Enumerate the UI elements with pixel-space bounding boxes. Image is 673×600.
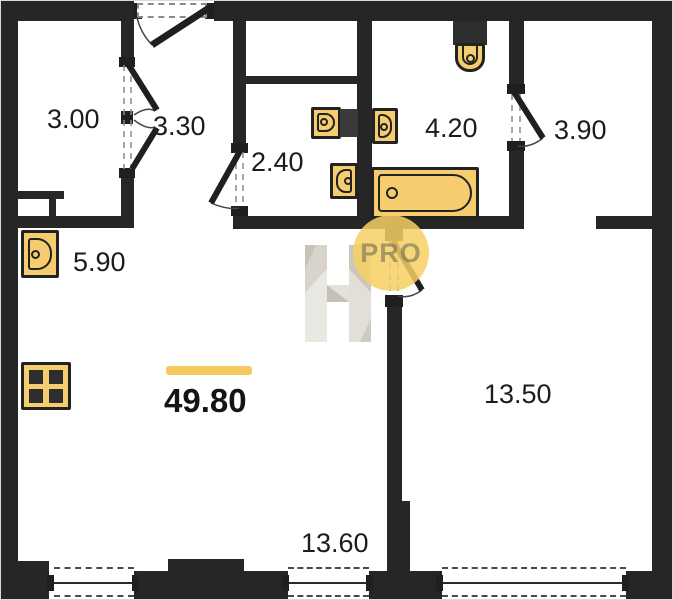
duct-shaft-wall <box>49 199 56 216</box>
toilet-icon <box>455 43 485 72</box>
window-icon <box>442 595 626 597</box>
wall <box>626 571 673 600</box>
wall <box>1 1 134 21</box>
room-label-kitchen: 13.60 <box>301 528 369 559</box>
wall <box>233 21 246 148</box>
window-jamb <box>366 575 373 591</box>
door-jamb <box>119 168 135 178</box>
door-jamb <box>507 141 525 151</box>
door-jamb <box>119 57 135 67</box>
sink-icon <box>372 108 398 144</box>
door-jamb <box>507 84 525 94</box>
room-label-closet: 3.00 <box>47 104 100 135</box>
bathroom-door-swing-icon <box>512 92 543 146</box>
wall <box>214 1 673 21</box>
doors-and-watermark-layer <box>1 1 673 600</box>
wall <box>596 216 652 229</box>
window-jamb <box>622 575 629 591</box>
wall <box>1 561 49 600</box>
window-icon <box>288 595 369 597</box>
wall <box>369 571 442 600</box>
window-icon <box>285 582 371 584</box>
window-icon <box>442 567 626 569</box>
room-label-hall: 3.90 <box>554 115 607 146</box>
pro-badge-label: PRO <box>360 238 422 269</box>
toilet-tank <box>453 21 487 45</box>
room-label-corridor: 5.90 <box>73 247 126 278</box>
pro-badge: PRO <box>353 215 429 291</box>
bathtub-icon <box>371 167 479 219</box>
window-icon <box>51 582 135 584</box>
wall <box>18 216 134 228</box>
total-area-label: 49.80 <box>164 382 247 420</box>
door-jamb <box>231 206 248 216</box>
window-icon <box>288 567 369 569</box>
window-jamb <box>282 575 289 591</box>
wall <box>509 149 524 229</box>
room-label-bathroom: 4.20 <box>425 113 478 144</box>
room-label-living-room: 13.50 <box>484 379 552 410</box>
wall <box>134 571 288 600</box>
window-jamb <box>47 575 54 591</box>
washing-machine-icon <box>340 109 358 137</box>
door-jamb <box>231 143 248 153</box>
total-area-accent-bar <box>166 366 252 375</box>
stove-icon <box>21 362 71 410</box>
wall <box>357 21 372 216</box>
wall <box>1 1 18 571</box>
door-pivot <box>121 111 133 124</box>
room-label-vestibule: 3.30 <box>153 111 206 142</box>
wc-door-swing-icon <box>211 151 243 208</box>
sink-icon <box>21 230 59 278</box>
window-icon <box>54 567 134 569</box>
wall <box>246 76 369 84</box>
entry-door-opening <box>137 3 207 18</box>
room-label-wc: 2.40 <box>251 147 304 178</box>
wall <box>652 1 673 600</box>
window-icon <box>54 595 134 597</box>
wall <box>18 191 64 199</box>
wall <box>168 559 244 573</box>
window-jamb <box>132 575 139 591</box>
wall <box>509 21 524 89</box>
wall <box>399 501 410 571</box>
sink-icon <box>311 107 341 139</box>
door-jamb <box>385 295 403 307</box>
floor-plan: 3.00 3.30 2.40 4.20 3.90 5.90 13.50 13.6… <box>0 0 673 600</box>
window-jamb <box>436 575 443 591</box>
toilet-icon <box>330 163 358 199</box>
window-icon <box>439 582 629 584</box>
wall <box>121 21 134 61</box>
